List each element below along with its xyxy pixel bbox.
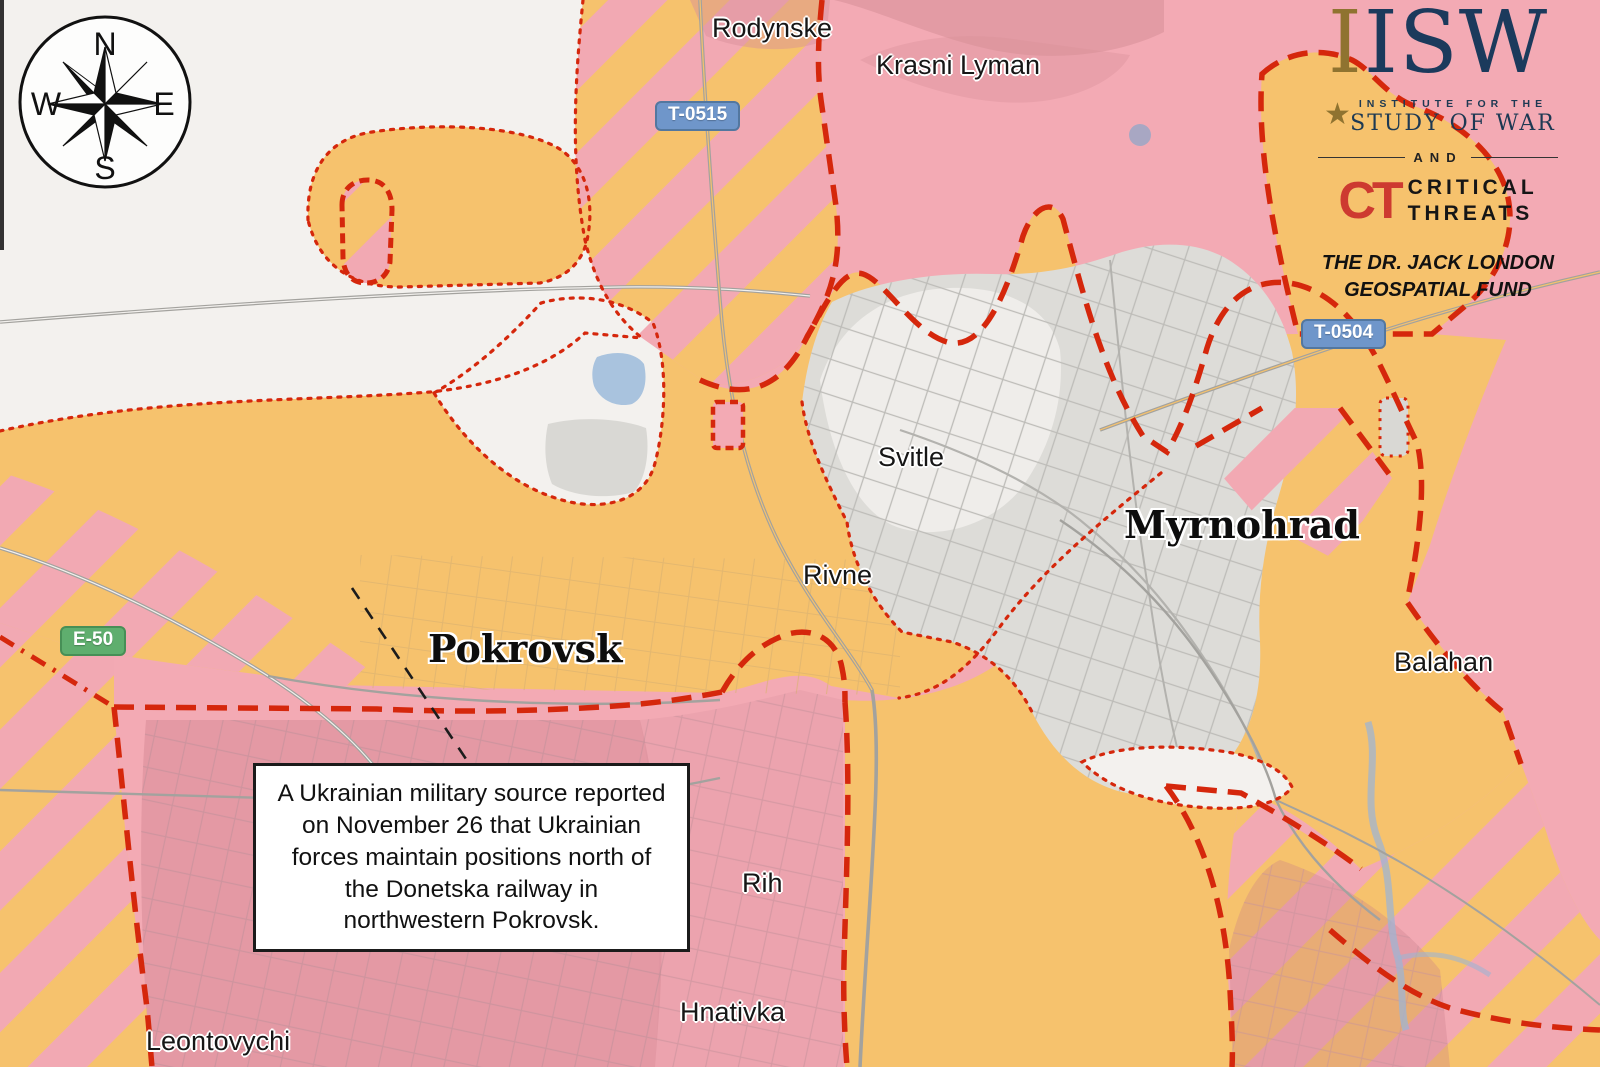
divider-line	[1471, 157, 1558, 158]
geospatial-fund-credit: THE DR. JACK LONDON GEOSPATIAL FUND	[1318, 250, 1558, 304]
town-label-krasni-lyman: Krasni Lyman	[876, 50, 1040, 81]
town-label-hnativka: Hnativka	[680, 997, 785, 1028]
isw-study-line: STUDY OF WAR	[1348, 111, 1558, 136]
compass-south-label: S	[94, 150, 115, 186]
isw-institute-block: ★ INSTITUTE FOR THE STUDY OF WAR	[1318, 98, 1558, 136]
and-label: AND	[1413, 150, 1462, 165]
road-badge-t0504: T-0504	[1301, 319, 1386, 349]
annotation-text: A Ukrainian military source reported on …	[277, 780, 665, 934]
annotation-box: A Ukrainian military source reported on …	[253, 763, 690, 952]
isw-gold-bar-icon: I	[1328, 0, 1362, 86]
compass-north-label: N	[93, 26, 116, 62]
star-icon: ★	[1324, 100, 1351, 130]
compass-rose: N S W E	[16, 13, 194, 191]
isw-wordmark: I ISW	[1318, 0, 1558, 96]
isw-ct-logo: I ISW ★ INSTITUTE FOR THE STUDY OF WAR A…	[1318, 0, 1558, 304]
town-label-leontovychi: Leontovychi	[146, 1026, 290, 1057]
isw-pokrovsk-map: N S W E Rodynske Krasni Lyman Svitle Riv…	[0, 0, 1600, 1067]
fund-line2: GEOSPATIAL FUND	[1344, 279, 1532, 301]
critical-threats-logo: CT CRITICAL THREATS	[1318, 175, 1558, 228]
divider-line	[1318, 157, 1405, 158]
city-label-myrnohrad: Myrnohrad	[1124, 502, 1360, 547]
road-badge-e50: E-50	[60, 626, 126, 656]
isw-letters: ISW	[1364, 0, 1548, 86]
compass-east-label: E	[153, 86, 174, 122]
critical-threats-text: CRITICAL THREATS	[1408, 175, 1538, 228]
critical-line: CRITICAL	[1408, 176, 1538, 199]
city-label-pokrovsk: Pokrovsk	[428, 626, 622, 671]
fund-line1: THE DR. JACK LONDON	[1322, 252, 1554, 274]
isw-institute-line: INSTITUTE FOR THE	[1348, 98, 1558, 110]
compass-west-label: W	[31, 86, 62, 122]
town-label-svitle: Svitle	[878, 442, 944, 473]
town-label-balahan: Balahan	[1394, 647, 1493, 678]
town-label-rodynske: Rodynske	[712, 13, 832, 44]
logo-and-divider: AND	[1318, 150, 1558, 165]
threats-line: THREATS	[1408, 202, 1534, 225]
frame-edge	[0, 0, 4, 250]
town-label-rih: Rih	[742, 868, 783, 899]
town-label-rivne: Rivne	[803, 560, 872, 591]
road-badge-t0515: T-0515	[655, 101, 740, 131]
ct-monogram-icon: CT	[1338, 178, 1399, 225]
